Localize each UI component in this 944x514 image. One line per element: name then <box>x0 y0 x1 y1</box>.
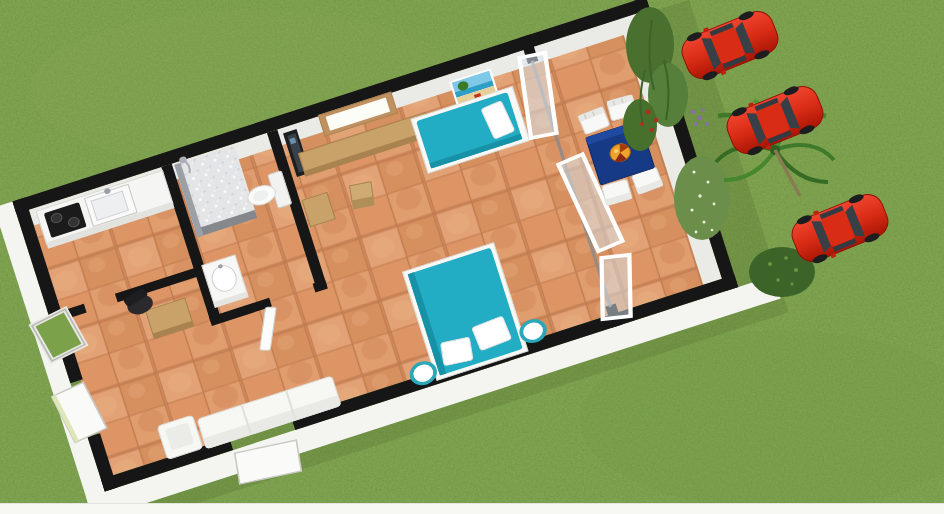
scene-canvas <box>0 0 944 514</box>
floor-plan-render <box>0 0 944 514</box>
bottom-border-strip <box>0 503 944 514</box>
wooden-chair <box>350 182 375 210</box>
glass-door-panel <box>602 255 631 319</box>
speckled-bush <box>674 156 730 240</box>
bottom-border-edge <box>0 503 944 504</box>
